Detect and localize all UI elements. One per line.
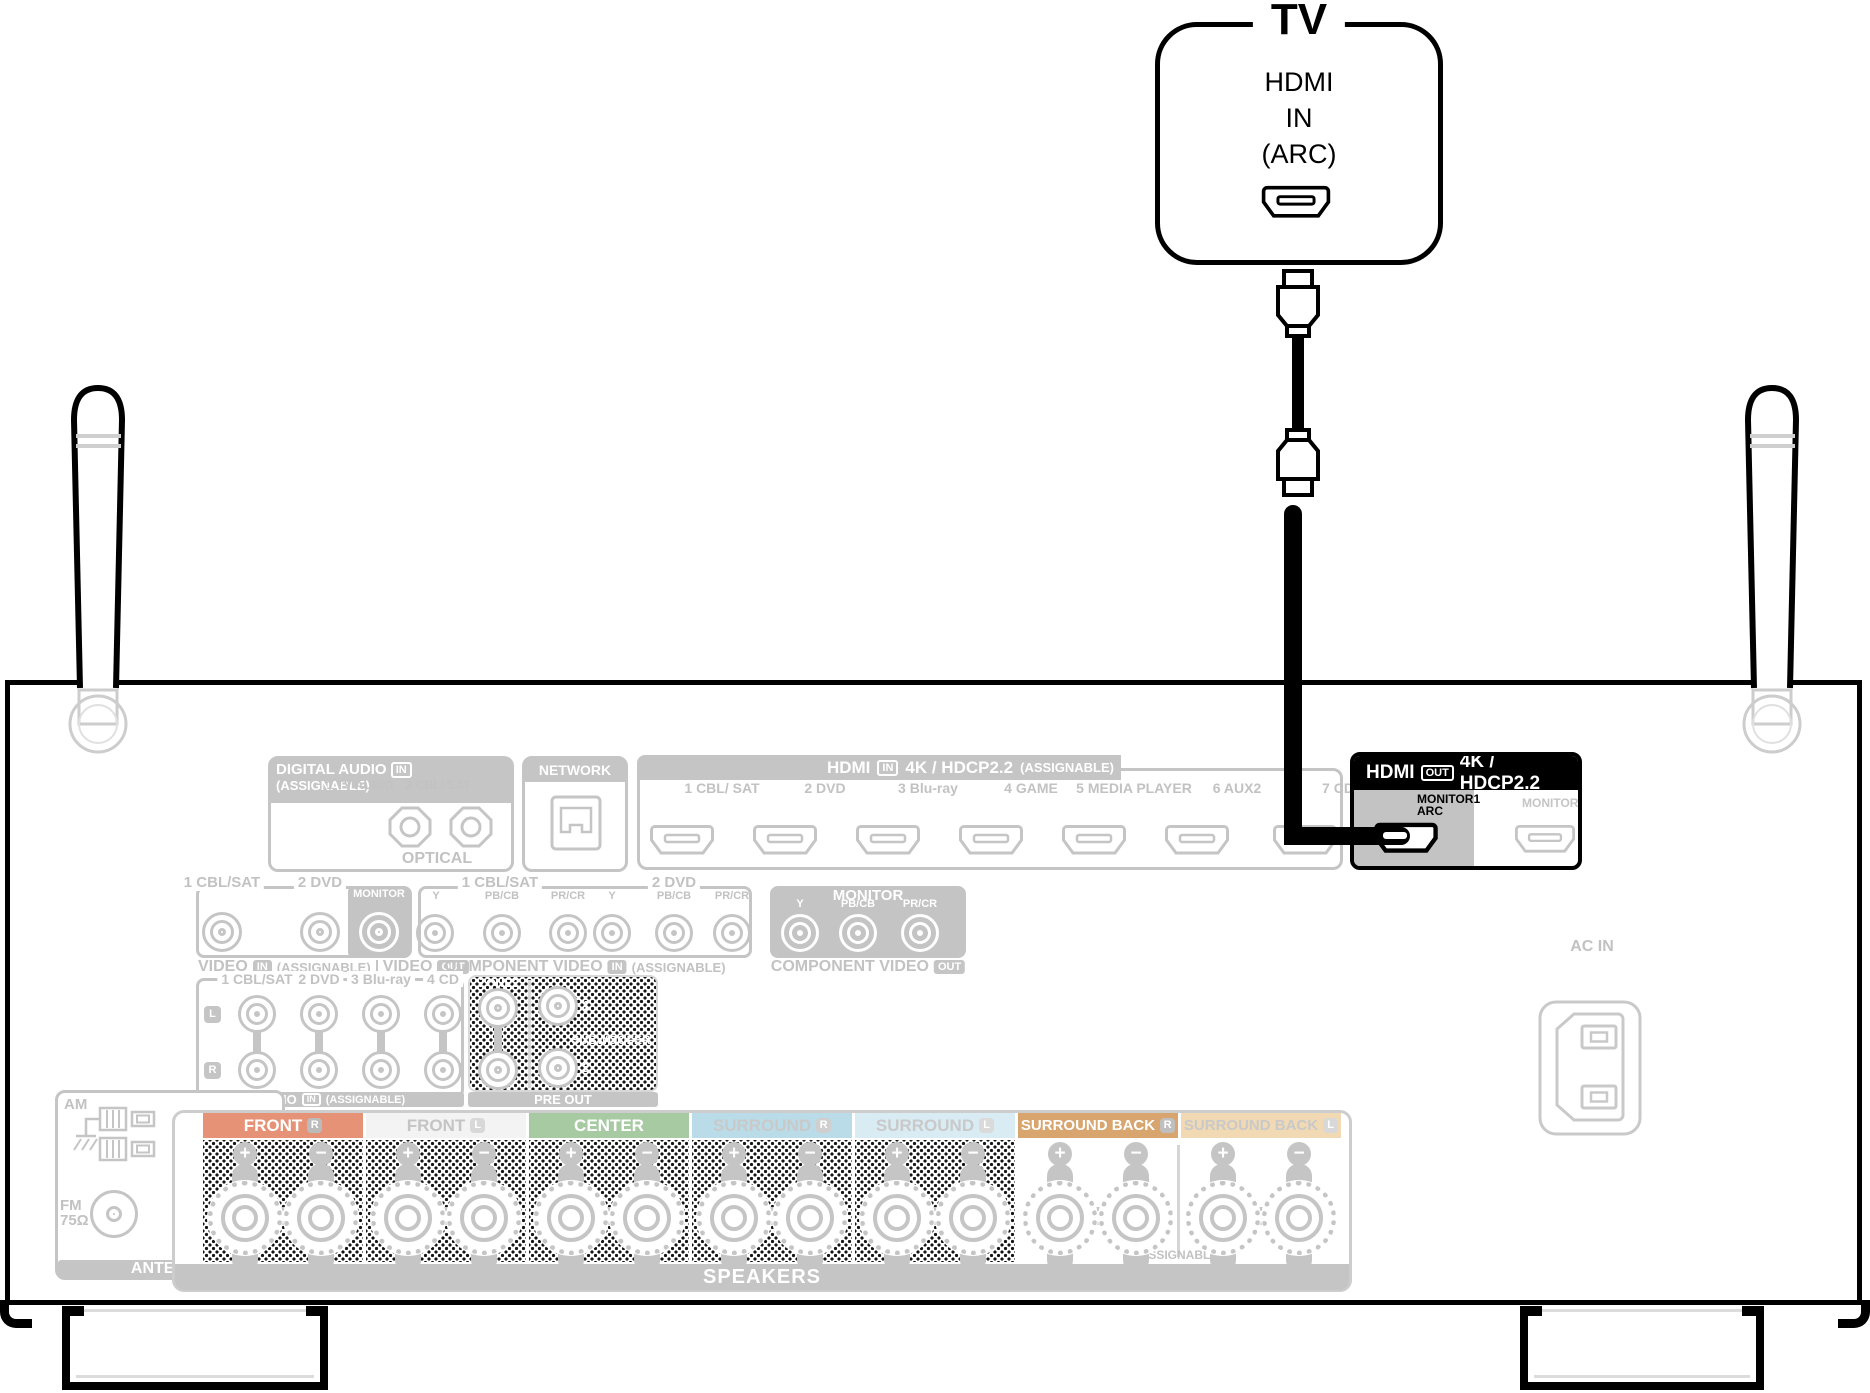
- speaker-header-center: CENTER: [529, 1113, 689, 1138]
- subwoofer-label: SUBWOOFER: [571, 1033, 650, 1047]
- hdmi-port-icon: [855, 824, 921, 856]
- video-in1-label: 1 CBL/SAT: [180, 874, 264, 891]
- hdmi-port-label: 3 Blu-ray: [898, 782, 958, 796]
- minus-terminal-mark: −: [798, 1142, 822, 1166]
- ethernet-port: [549, 794, 603, 852]
- component-group1-label: 1 CBL/SAT: [458, 874, 542, 891]
- speaker-label: SURROUND: [876, 1116, 974, 1136]
- optical-port1-label: 1 TV AUDIO: [327, 780, 394, 792]
- speaker-label: CENTER: [574, 1116, 644, 1136]
- rca-jack: [362, 1051, 400, 1089]
- col-label-pbcb: PB/CB: [657, 890, 691, 902]
- binding-post: [696, 1180, 772, 1256]
- ac-inlet: [1538, 1000, 1642, 1136]
- hdmi-in-spec: 4K / HDCP2.2: [905, 758, 1013, 778]
- minus-terminal-mark: −: [309, 1142, 333, 1166]
- component-in-title: COMPONENT VIDEO: [444, 958, 602, 976]
- speaker-header-front-l: FRONT L: [366, 1113, 526, 1138]
- binding-post: [446, 1180, 522, 1256]
- binding-post: [772, 1180, 848, 1256]
- component-footer-out: COMPONENT VIDEO OUT: [771, 958, 965, 976]
- audio-col-label: 3 Blu-ray: [347, 971, 415, 987]
- ac-in-label: AC IN: [1570, 938, 1614, 956]
- hdmi-cable-connectors: [1272, 268, 1324, 498]
- minus-terminal-mark: −: [1287, 1142, 1311, 1166]
- binding-post: [859, 1180, 935, 1256]
- component-in-note: (ASSIGNABLE): [632, 960, 726, 975]
- in-badge: IN: [391, 762, 412, 778]
- optical-footer: OPTICAL: [402, 850, 472, 868]
- hdmi-port-icon: [1513, 824, 1577, 854]
- plus-terminal-mark: +: [722, 1142, 746, 1166]
- speakers-footer: SPEAKERS: [175, 1264, 1349, 1290]
- binding-post: [207, 1180, 283, 1256]
- binding-post: [533, 1180, 609, 1256]
- hdmi-port-icon: [1164, 824, 1230, 856]
- pre-out-title: PRE OUT: [534, 1092, 592, 1107]
- plus-terminal-mark: +: [396, 1142, 420, 1166]
- hdmi-cable-run: [1284, 505, 1302, 845]
- rca-jack: [538, 1048, 578, 1088]
- audio-col-label: 4 CD: [423, 971, 463, 987]
- col-label-prcr: PR/CR: [903, 898, 937, 910]
- speaker-header-surround-back-r: SURROUND BACK R: [1018, 1113, 1178, 1138]
- speaker-header-front-r: FRONT R: [203, 1113, 363, 1138]
- in-badge: IN: [302, 1093, 321, 1106]
- minus-terminal-mark: −: [635, 1142, 659, 1166]
- rca-jack: [781, 914, 819, 952]
- rca-jack: [655, 914, 693, 952]
- fm-coax-connector: [90, 1190, 138, 1238]
- rca-jack: [202, 912, 242, 952]
- channel-tag: R: [307, 1118, 322, 1133]
- tv-title: TV: [1253, 0, 1345, 45]
- video-monitor-label: MONITOR: [348, 888, 410, 900]
- binding-post: [609, 1180, 685, 1256]
- rca-jack: [300, 1051, 338, 1089]
- monitor1-label: MONITOR1 ARC: [1417, 794, 1480, 817]
- speaker-label: FRONT: [407, 1116, 466, 1136]
- speaker-header-surround-l: SURROUND L: [855, 1113, 1015, 1138]
- hdmi-port-label: 5 MEDIA PLAYER: [1076, 782, 1192, 796]
- hdmi-in-note: (ASSIGNABLE): [1020, 760, 1114, 775]
- binding-post: [1022, 1180, 1098, 1256]
- component-out-title: COMPONENT VIDEO: [771, 958, 929, 976]
- right-channel-badge: R: [204, 1062, 221, 1079]
- receiver-foot-left: [62, 1306, 328, 1390]
- rca-jack: [901, 914, 939, 952]
- hdmi-port-label: 6 AUX2: [1213, 782, 1262, 796]
- hdmi-port-icon: [649, 824, 715, 856]
- rca-jack: [359, 912, 399, 952]
- binding-post: [1098, 1180, 1174, 1256]
- rca-jack: [839, 914, 877, 952]
- chassis-corner-left: [0, 1300, 32, 1328]
- am-antenna-terminal: [62, 1106, 162, 1164]
- receiver-foot-right: [1520, 1306, 1764, 1390]
- channel-tag: L: [470, 1118, 485, 1133]
- divider: [1177, 1145, 1180, 1257]
- binding-post: [1185, 1180, 1261, 1256]
- speakers-title: SPEAKERS: [703, 1266, 821, 1289]
- plus-terminal-mark: +: [1048, 1142, 1072, 1166]
- lr-connector: [494, 1026, 502, 1052]
- col-label-y: Y: [432, 890, 439, 902]
- hdmi-in-header: HDMI IN 4K / HDCP2.2 (ASSIGNABLE): [637, 755, 1121, 780]
- col-label-prcr: PR/CR: [551, 890, 585, 902]
- hdmi-out-spec: 4K / HDCP2.2: [1460, 752, 1566, 795]
- component-footer-in: COMPONENT VIDEO IN (ASSIGNABLE): [444, 958, 725, 976]
- hdmi-port-label: 1 CBL/ SAT: [684, 782, 759, 796]
- hdmi-port-icon: [1061, 824, 1127, 856]
- minus-terminal-mark: −: [1124, 1142, 1148, 1166]
- fm-label: FM 75Ω: [60, 1198, 89, 1228]
- hdmi-out-header: HDMI OUT 4K / HDCP2.2: [1354, 756, 1578, 790]
- connection-diagram: DIGITAL AUDIO IN (ASSIGNABLE) 1 TV AUDIO…: [0, 0, 1870, 1393]
- binding-post: [935, 1180, 1011, 1256]
- rca-jack: [362, 995, 400, 1033]
- divider: [528, 980, 531, 1088]
- plus-terminal-mark: +: [233, 1142, 257, 1166]
- optical-port-2: [448, 805, 494, 849]
- plus-terminal-mark: +: [559, 1142, 583, 1166]
- speaker-label: SURROUND BACK: [1021, 1117, 1155, 1134]
- in-badge: IN: [877, 760, 898, 776]
- binding-post: [370, 1180, 446, 1256]
- binding-post: [283, 1180, 359, 1256]
- monitor2-label: MONITOR2: [1522, 796, 1582, 810]
- network-header: NETWORK: [524, 758, 626, 782]
- speaker-header-surround-back-l: SURROUND BACK L: [1181, 1113, 1341, 1138]
- out-badge: OUT: [934, 960, 965, 974]
- subwoofer-2: 2: [582, 1060, 589, 1075]
- hdmi-port-label: 4 GAME: [1004, 782, 1058, 796]
- binding-post: [1261, 1180, 1337, 1256]
- hdmi-port-icon: [1257, 185, 1335, 219]
- channel-tag: R: [1160, 1118, 1175, 1133]
- minus-terminal-mark: −: [961, 1142, 985, 1166]
- hdmi-in-title: HDMI: [827, 758, 870, 778]
- rca-jack: [238, 995, 276, 1033]
- component-group2-label: 2 DVD: [648, 874, 700, 891]
- wifi-antenna-left: [58, 372, 138, 762]
- speaker-header-surround-r: SURROUND R: [692, 1113, 852, 1138]
- rca-jack: [549, 914, 587, 952]
- rca-jack: [300, 912, 340, 952]
- rca-jack: [483, 914, 521, 952]
- audio-footer-note: (ASSIGNABLE): [326, 1094, 405, 1106]
- wifi-antenna-right: [1732, 372, 1812, 762]
- video-in2-label: 2 DVD: [294, 874, 346, 891]
- plus-terminal-mark: +: [1211, 1142, 1235, 1166]
- minus-terminal-mark: −: [472, 1142, 496, 1166]
- hdmi-port-icon: [958, 824, 1024, 856]
- hdmi-port-label: 2 DVD: [804, 782, 845, 796]
- digital-audio-title: DIGITAL AUDIO: [276, 761, 387, 778]
- audio-col-label: 1 CBL/SAT: [217, 971, 296, 987]
- plus-terminal-mark: +: [885, 1142, 909, 1166]
- channel-tag: R: [816, 1118, 831, 1133]
- network-title: NETWORK: [539, 762, 611, 778]
- rca-jack: [478, 988, 518, 1028]
- hdmi-out-title: HDMI: [1366, 762, 1415, 784]
- col-label-pbcb: PB/CB: [841, 898, 875, 910]
- subwoofer-1: 1: [582, 998, 589, 1013]
- in-badge: IN: [608, 960, 627, 974]
- col-label-y: Y: [608, 890, 615, 902]
- rca-jack: [300, 995, 338, 1033]
- col-label-pbcb: PB/CB: [485, 890, 519, 902]
- channel-tag: L: [979, 1118, 994, 1133]
- speaker-label: SURROUND BACK: [1184, 1117, 1318, 1134]
- col-label-prcr: PR/CR: [715, 890, 749, 902]
- out-badge: OUT: [1421, 765, 1454, 781]
- speaker-label: SURROUND: [713, 1116, 811, 1136]
- rca-jack: [478, 1050, 518, 1090]
- rca-jack: [416, 914, 454, 952]
- rca-jack: [538, 986, 578, 1026]
- hdmi-port-icon: [752, 824, 818, 856]
- col-label-y: Y: [796, 898, 803, 910]
- rca-jack: [424, 1051, 462, 1089]
- left-channel-badge: L: [204, 1006, 221, 1023]
- rca-jack: [593, 914, 631, 952]
- optical-port2-label: 2 CBL/ SAT: [406, 780, 470, 792]
- rca-jack: [713, 914, 751, 952]
- speaker-label: FRONT: [244, 1116, 303, 1136]
- optical-port-1: [387, 805, 433, 849]
- rca-jack: [424, 995, 462, 1033]
- channel-tag: L: [1323, 1118, 1338, 1133]
- chassis-corner-right: [1838, 1300, 1870, 1328]
- tv-hdmi-in-label: HDMI IN (ARC): [1155, 64, 1443, 172]
- rca-jack: [238, 1051, 276, 1089]
- audio-col-label: 2 DVD: [294, 971, 343, 987]
- hdmi-plug-slot: [1383, 832, 1407, 839]
- pre-out-footer: PRE OUT: [468, 1092, 658, 1107]
